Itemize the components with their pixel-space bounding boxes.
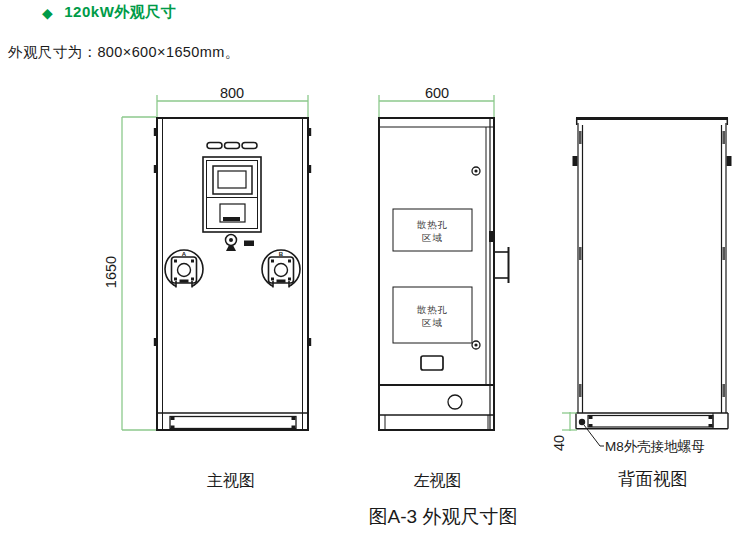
indicator-lights bbox=[207, 143, 257, 149]
vent-area-2-label-line1: 散热孔 bbox=[417, 304, 449, 315]
nameplate-slot bbox=[244, 241, 254, 247]
vent-area-2: 散热孔 区域 bbox=[393, 287, 472, 343]
back-view: M8外壳接地螺母 40 背面视图 bbox=[551, 118, 732, 489]
front-height-dim-text: 1650 bbox=[103, 256, 119, 288]
ground-nut-dot bbox=[579, 419, 585, 425]
front-view: 800 1650 bbox=[103, 85, 311, 489]
ground-nut-label: M8外壳接地螺母 bbox=[605, 439, 705, 454]
back-view-caption: 背面视图 bbox=[618, 469, 688, 489]
left-view: 600 散热孔 区域 bbox=[379, 85, 509, 489]
left-width-dimension: 600 bbox=[379, 85, 494, 117]
side-lock-top bbox=[472, 167, 480, 175]
front-view-caption: 主视图 bbox=[207, 472, 255, 489]
gun-holster-b: B bbox=[262, 250, 300, 291]
front-width-dim-text: 800 bbox=[220, 85, 244, 101]
card-slot bbox=[223, 217, 240, 221]
door-lock-icon bbox=[226, 235, 237, 252]
screen bbox=[218, 171, 246, 188]
left-width-dim-text: 600 bbox=[425, 85, 449, 101]
front-base bbox=[157, 413, 308, 429]
vent-area-1-label-line1: 散热孔 bbox=[417, 219, 449, 230]
ground-height-dimension: 40 bbox=[551, 412, 577, 451]
display-panel bbox=[203, 157, 261, 232]
outline-dimension-figure: 800 1650 bbox=[0, 0, 742, 541]
left-view-caption: 左视图 bbox=[414, 472, 462, 489]
front-width-dimension: 800 bbox=[157, 85, 308, 117]
left-cabinet-outline bbox=[379, 118, 494, 430]
back-base bbox=[576, 413, 728, 429]
cable-gland bbox=[448, 395, 462, 409]
access-cover bbox=[421, 356, 443, 370]
door-handle bbox=[489, 231, 509, 283]
side-lock-bottom bbox=[472, 341, 480, 349]
figure-caption: 图A-3 外观尺寸图 bbox=[369, 506, 518, 527]
manual-page: ◆ 120kW外观尺寸 外观尺寸为：800×600×1650mm。 800 16… bbox=[0, 0, 742, 541]
vent-area-2-label-line2: 区域 bbox=[422, 317, 443, 328]
gun-b-label: B bbox=[279, 251, 284, 257]
ground-height-dim-text: 40 bbox=[551, 435, 567, 451]
gun-holster-a: A bbox=[165, 250, 203, 291]
front-height-dimension: 1650 bbox=[103, 117, 156, 430]
vent-area-1: 散热孔 区域 bbox=[393, 209, 472, 251]
gun-a-label: A bbox=[182, 251, 187, 257]
left-base bbox=[379, 415, 494, 430]
back-side-tabs bbox=[573, 156, 732, 166]
vent-area-1-label-line2: 区域 bbox=[422, 232, 443, 243]
back-hinge-marks bbox=[579, 131, 725, 397]
